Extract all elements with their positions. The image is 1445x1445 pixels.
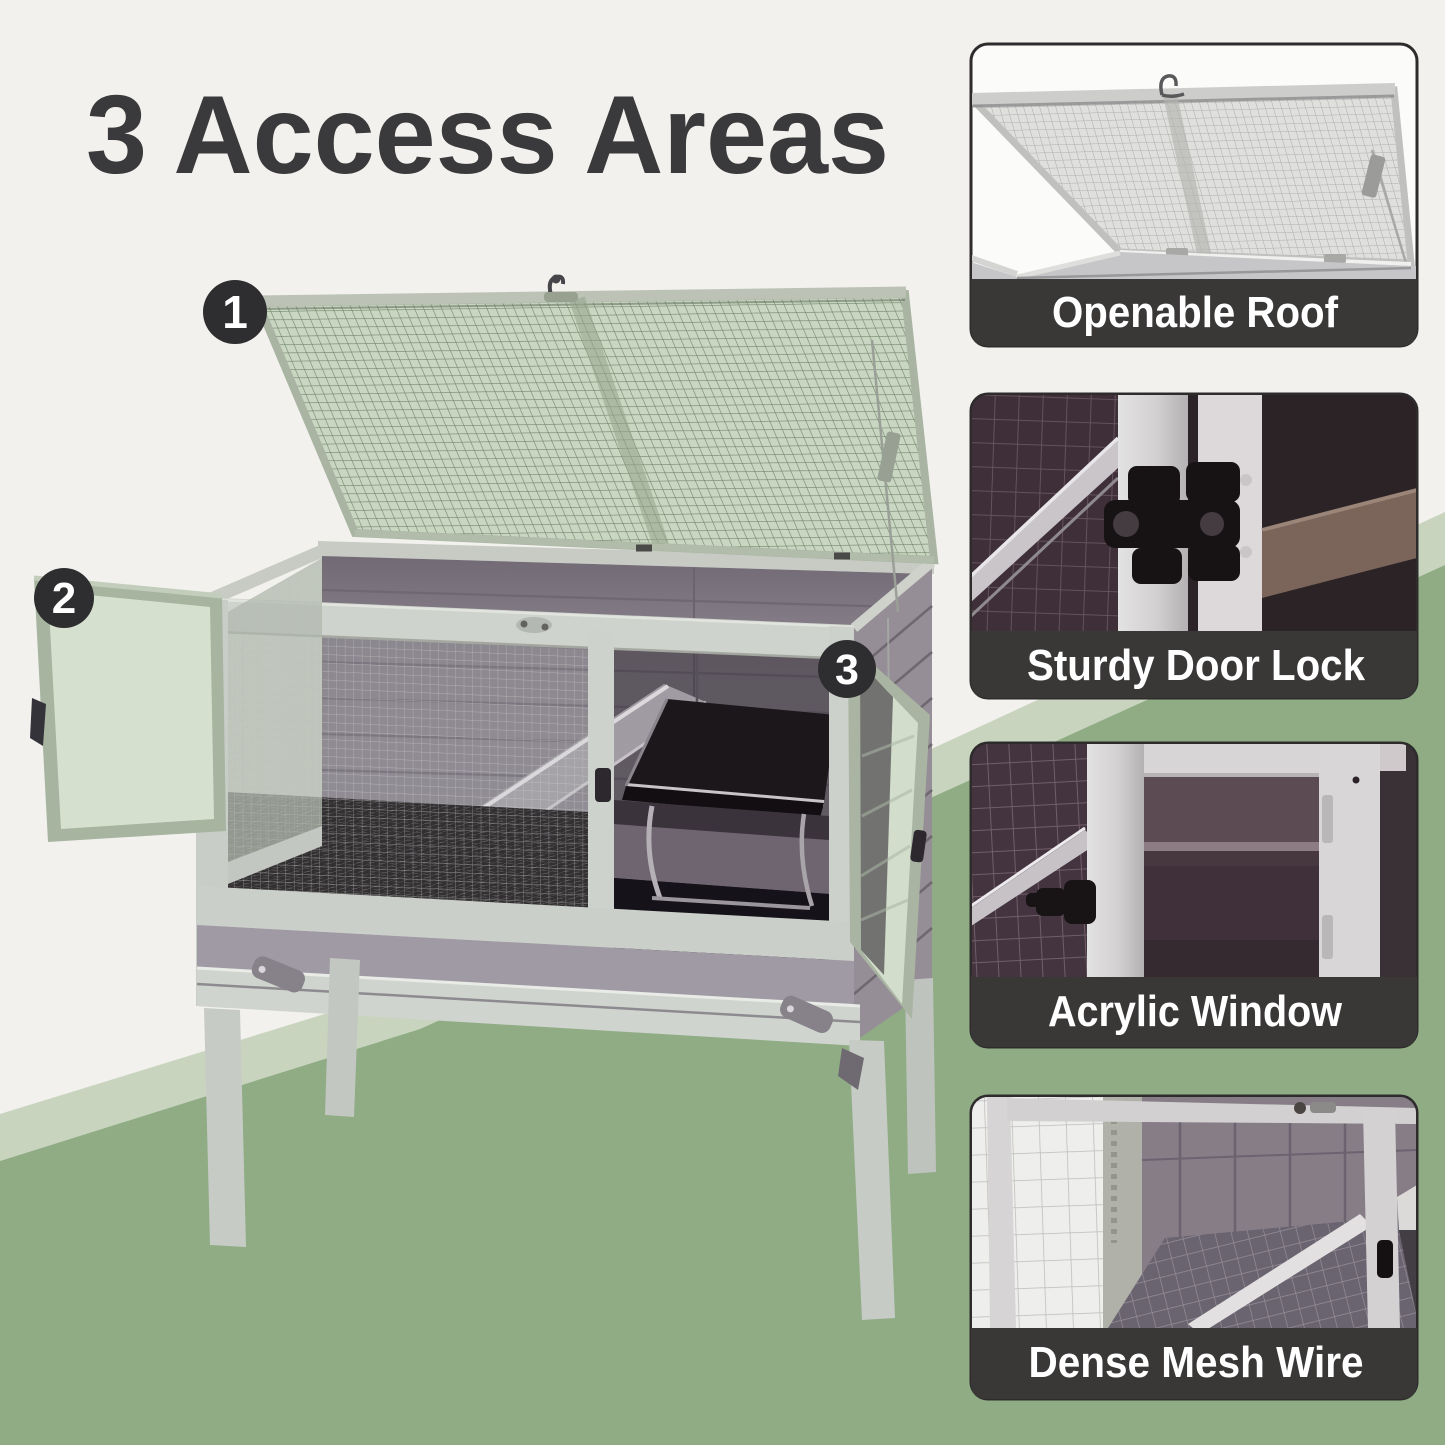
svg-text:2: 2 — [52, 574, 76, 623]
svg-text:1: 1 — [222, 286, 248, 338]
svg-text:3: 3 — [835, 646, 859, 694]
svg-text:Sturdy Door Lock: Sturdy Door Lock — [1027, 641, 1365, 690]
svg-text:Openable Roof: Openable Roof — [1052, 288, 1338, 337]
svg-text:3 Access Areas: 3 Access Areas — [86, 73, 889, 197]
svg-text:Acrylic Window: Acrylic Window — [1048, 987, 1343, 1036]
svg-text:Dense Mesh Wire: Dense Mesh Wire — [1029, 1338, 1364, 1387]
